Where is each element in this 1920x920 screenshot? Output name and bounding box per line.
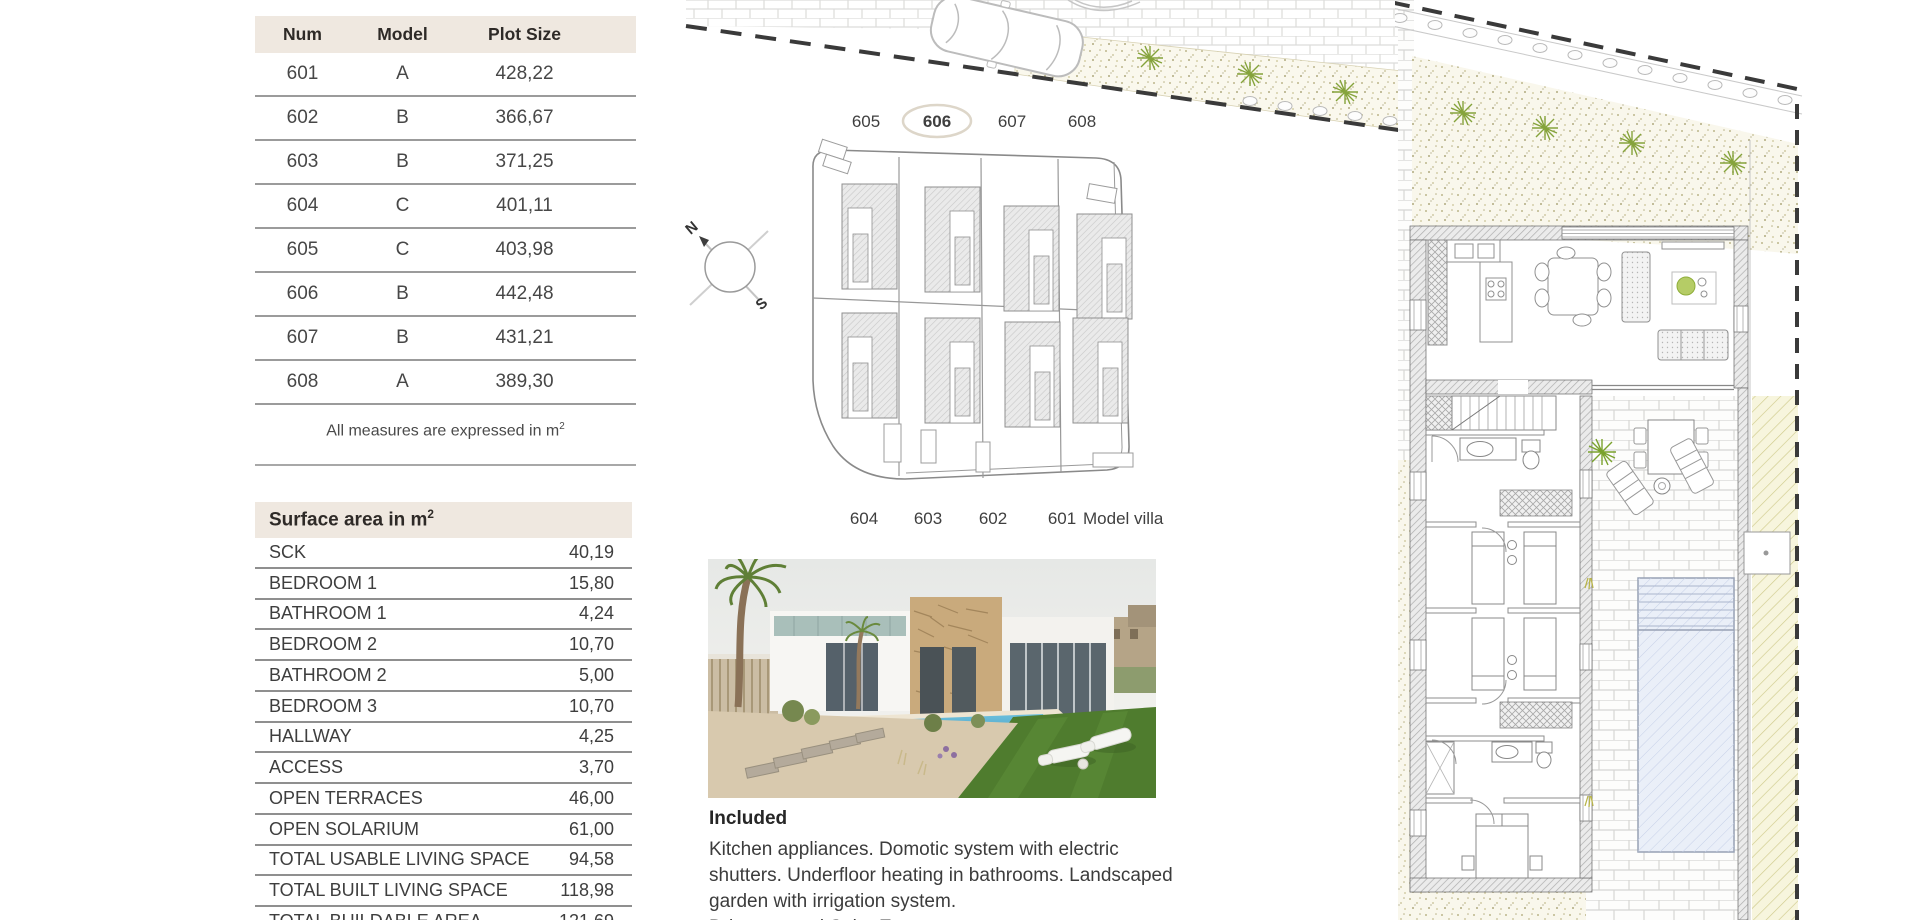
- bathroom-2: [1426, 740, 1552, 794]
- table-row: BATHROOM 14,24: [255, 600, 632, 631]
- pool: [1638, 578, 1734, 852]
- wardrobe: [1500, 490, 1572, 516]
- table-row: BEDROOM 210,70: [255, 630, 632, 661]
- unit-label-604: 604: [850, 509, 878, 528]
- included-section: Included Kitchen appliances. Domotic sys…: [709, 808, 1179, 920]
- villa-photo: [708, 559, 1156, 798]
- table-row: 605C403,98: [255, 229, 636, 273]
- surface-table-body: SCK40,19BEDROOM 115,80BATHROOM 14,24BEDR…: [255, 538, 632, 920]
- table-row: BEDROOM 310,70: [255, 692, 632, 723]
- table-row: 603B371,25: [255, 141, 636, 185]
- table-row: 607B431,21: [255, 317, 636, 361]
- stairs: [1426, 396, 1556, 430]
- included-heading: Included: [709, 808, 1179, 830]
- table-row: OPEN TERRACES46,00: [255, 784, 632, 815]
- table-row: TOTAL BUILT LIVING SPACE118,98: [255, 876, 632, 907]
- table-row: 602B366,67: [255, 97, 636, 141]
- compass-north-label: N: [682, 218, 701, 238]
- table-row: 608A389,30: [255, 361, 636, 405]
- unit-label-603: 603: [914, 509, 942, 528]
- table-row: TOTAL USABLE LIVING SPACE94,58: [255, 846, 632, 877]
- table-row: ACCESS3,70: [255, 753, 632, 784]
- divider: [255, 464, 636, 466]
- unit-label-605: 605: [852, 112, 880, 131]
- table-row: BATHROOM 25,00: [255, 661, 632, 692]
- table-row: TOTAL BUILDABLE AREA121,69: [255, 907, 632, 920]
- plots-layout: [813, 139, 1133, 479]
- unit-label-606-highlighted: 606: [923, 112, 951, 131]
- unit-label-602: 602: [979, 509, 1007, 528]
- wardrobe: [1500, 702, 1572, 728]
- unit-label-601: 601: [1048, 509, 1076, 528]
- compass-south-label: S: [753, 294, 772, 313]
- compass-icon: N S: [682, 218, 771, 314]
- column-header: Model: [350, 24, 455, 45]
- column-header: Num: [255, 24, 350, 45]
- table-row: 601A428,22: [255, 53, 636, 97]
- site-plan: N S: [650, 0, 1410, 545]
- brochure-page: Num Model Plot Size 601A428,22602B366,67…: [0, 0, 1920, 920]
- table-row: 604C401,11: [255, 185, 636, 229]
- column-header: Plot Size: [455, 24, 636, 45]
- floor-plan: [1395, 0, 1920, 920]
- unit-label-607: 607: [998, 112, 1026, 131]
- table-row: HALLWAY4,25: [255, 723, 632, 754]
- table-row: SCK40,19: [255, 538, 632, 569]
- surface-table-title: Surface area in m2: [255, 502, 632, 538]
- side-gate: [1744, 532, 1790, 574]
- bedroom-2: [1472, 618, 1556, 704]
- table-row: BEDROOM 115,80: [255, 569, 632, 600]
- plot-table-body: 601A428,22602B366,67603B371,25604C401,11…: [255, 53, 636, 405]
- plant-icon: [1588, 439, 1616, 465]
- street-strip: [686, 0, 1410, 132]
- included-partial-line: Driveway and Solar Energy.: [709, 915, 1179, 920]
- plot-table-header: Num Model Plot Size: [255, 16, 636, 53]
- bedroom-1: [1472, 528, 1556, 604]
- bathroom-1: [1432, 436, 1540, 469]
- kitchen-living-furniture: [1428, 240, 1728, 360]
- unit-label-608: 608: [1068, 112, 1096, 131]
- table-row: 606B442,48: [255, 273, 636, 317]
- model-villa-label: Model villa: [1083, 509, 1164, 528]
- measures-note: All measures are expressed in m2: [255, 421, 636, 440]
- included-body: Kitchen appliances. Domotic system with …: [709, 837, 1179, 915]
- bedroom-3: [1462, 800, 1542, 878]
- table-row: OPEN SOLARIUM61,00: [255, 815, 632, 846]
- surface-area-table: Surface area in m2 SCK40,19BEDROOM 115,8…: [255, 502, 632, 920]
- plot-size-table: Num Model Plot Size 601A428,22602B366,67…: [255, 16, 636, 466]
